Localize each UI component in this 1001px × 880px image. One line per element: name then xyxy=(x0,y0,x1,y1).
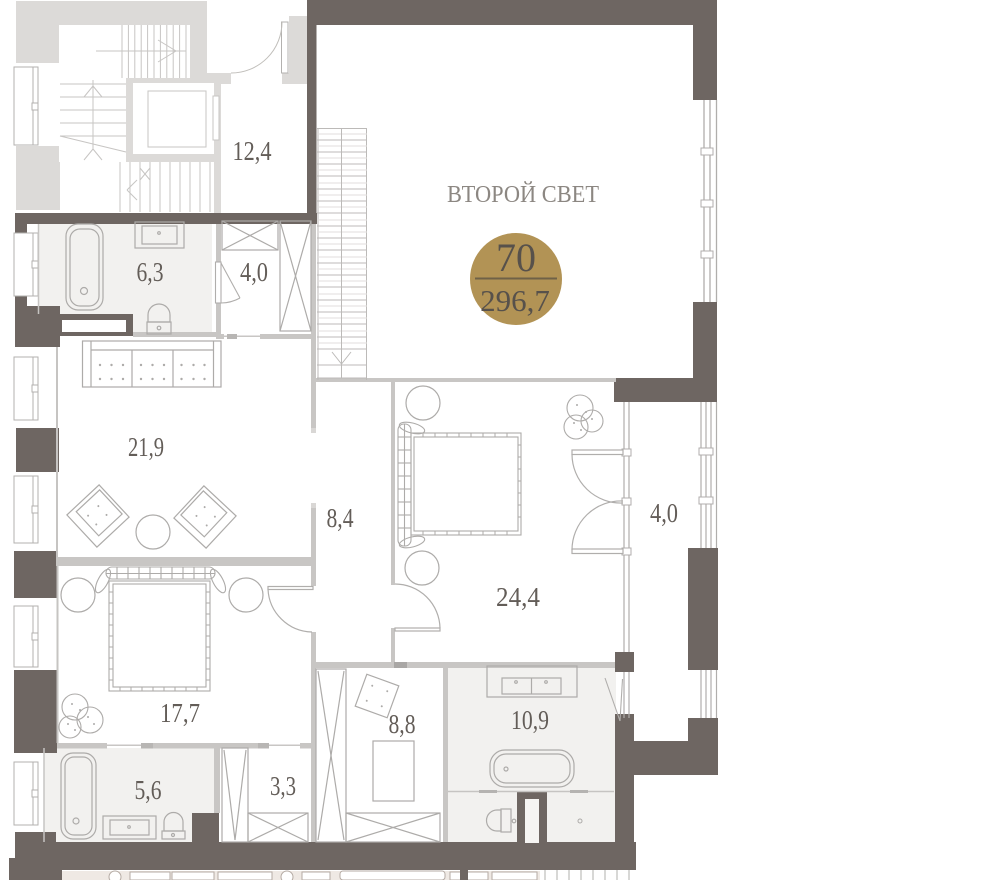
svg-text:ВТОРОЙ СВЕТ: ВТОРОЙ СВЕТ xyxy=(447,182,599,208)
svg-text:12,4: 12,4 xyxy=(233,136,272,166)
svg-text:8,4: 8,4 xyxy=(327,503,354,533)
svg-text:5,6: 5,6 xyxy=(135,775,162,805)
svg-text:10,9: 10,9 xyxy=(511,705,549,735)
svg-text:296,7: 296,7 xyxy=(480,283,550,318)
svg-text:8,8: 8,8 xyxy=(389,709,416,739)
svg-text:24,4: 24,4 xyxy=(496,582,540,612)
svg-text:21,9: 21,9 xyxy=(128,432,164,462)
svg-text:4,0: 4,0 xyxy=(650,498,678,528)
svg-text:4,0: 4,0 xyxy=(240,257,268,287)
svg-text:6,3: 6,3 xyxy=(137,257,164,287)
svg-text:70: 70 xyxy=(496,235,536,280)
svg-text:17,7: 17,7 xyxy=(160,698,200,728)
svg-text:3,3: 3,3 xyxy=(270,771,296,801)
